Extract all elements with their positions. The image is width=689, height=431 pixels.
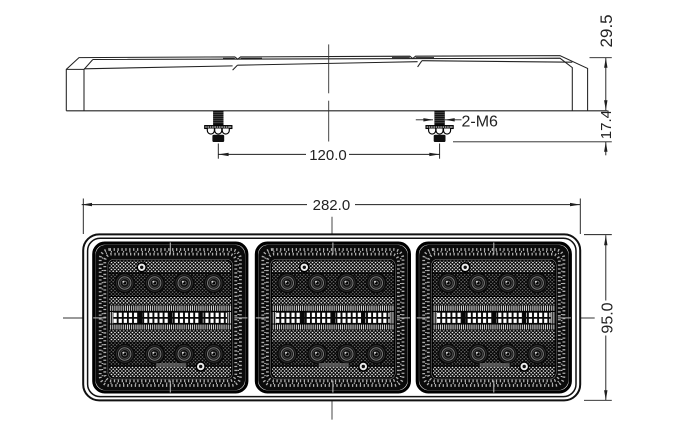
svg-text:282.0: 282.0 xyxy=(313,197,351,214)
svg-text:120.0: 120.0 xyxy=(309,147,347,164)
svg-text:17.4: 17.4 xyxy=(598,110,615,139)
svg-text:2-M6: 2-M6 xyxy=(462,114,499,131)
svg-text:95.0: 95.0 xyxy=(600,302,617,333)
svg-text:29.5: 29.5 xyxy=(597,14,616,47)
